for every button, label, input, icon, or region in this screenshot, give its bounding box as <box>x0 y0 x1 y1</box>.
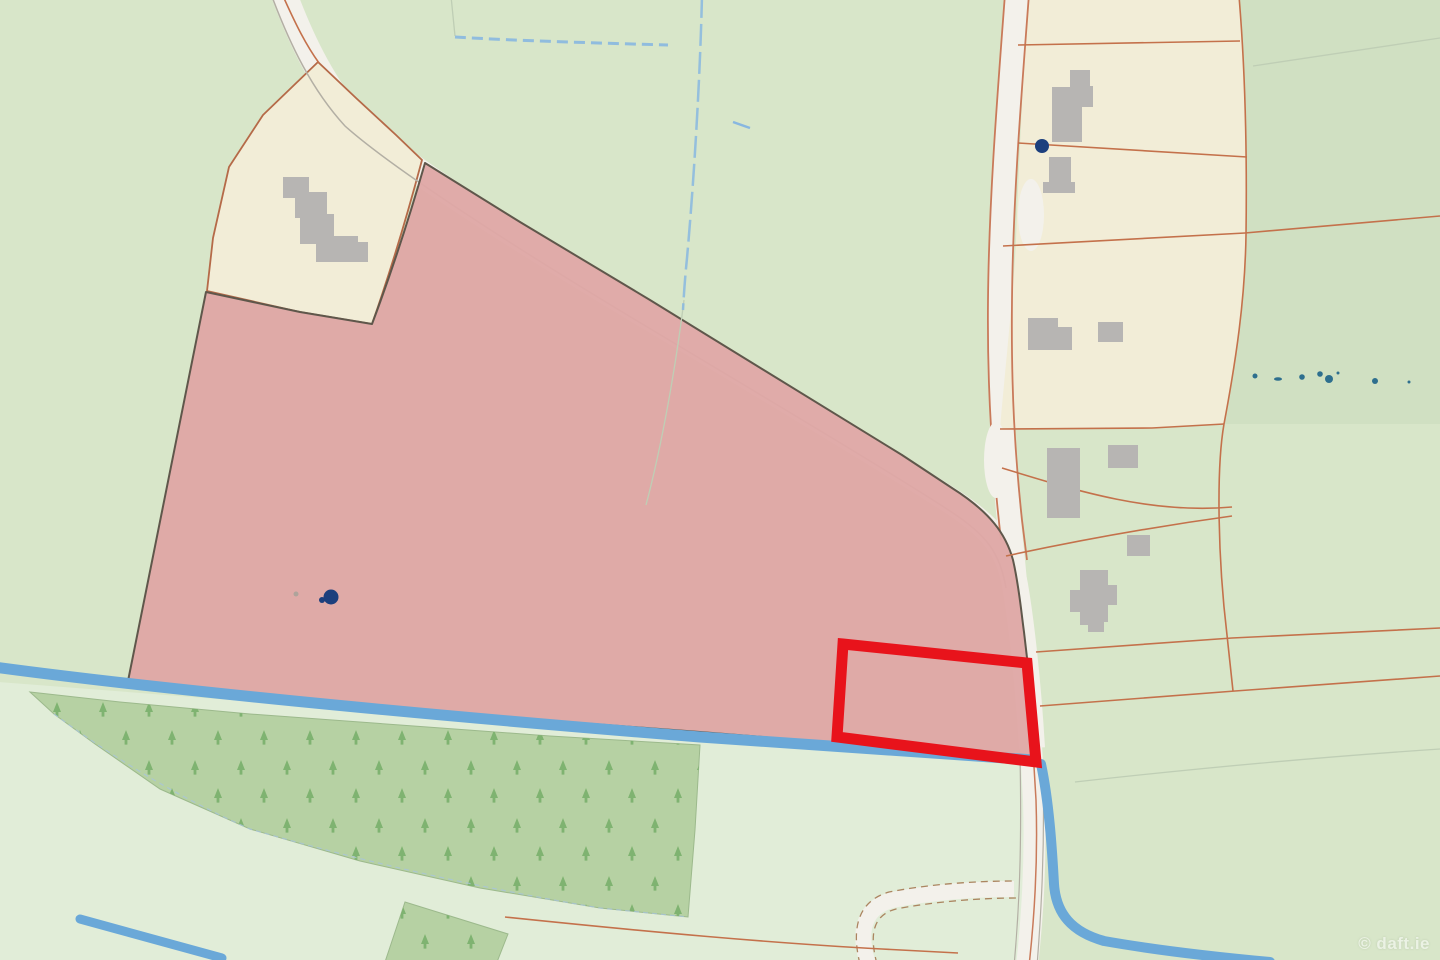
water-dot <box>1274 377 1282 381</box>
road-south <box>1027 746 1035 960</box>
map-speck <box>294 592 299 597</box>
water-dot <box>1372 378 1378 384</box>
road-gateway <box>984 422 1008 498</box>
water-dot <box>1337 372 1340 375</box>
water-dot <box>1253 374 1258 379</box>
water-dot <box>1317 371 1323 377</box>
water-dot <box>1408 381 1411 384</box>
field-area-northeast <box>1224 0 1440 424</box>
building <box>1098 322 1123 342</box>
well-marker <box>319 597 325 603</box>
road-gateway <box>1018 179 1044 251</box>
building <box>1047 448 1080 518</box>
well-marker <box>324 590 339 605</box>
map-image[interactable]: © daft.ie <box>0 0 1440 960</box>
building <box>1127 535 1150 556</box>
building <box>1108 445 1138 468</box>
water-dot <box>1325 375 1333 383</box>
well-marker <box>1035 139 1049 153</box>
map-svg <box>0 0 1440 960</box>
water-dot <box>1299 374 1305 380</box>
